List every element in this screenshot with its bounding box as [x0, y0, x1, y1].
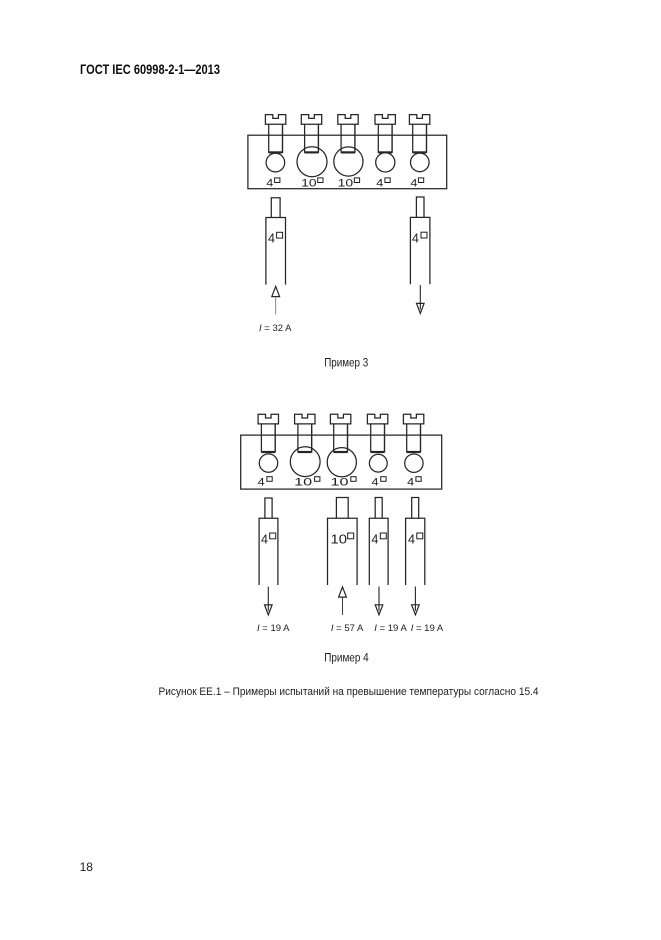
svg-text:ГОСТ IEC 60998-2-1—2013: ГОСТ IEC 60998-2-1—2013 — [80, 61, 220, 77]
svg-text:10: 10 — [301, 178, 317, 190]
svg-text:18: 18 — [80, 860, 94, 874]
svg-text:I = 19 A: I = 19 A — [411, 623, 444, 634]
svg-text:Пример 3: Пример 3 — [324, 358, 368, 370]
svg-text:I = 57 A: I = 57 A — [331, 623, 364, 634]
svg-text:4: 4 — [258, 476, 265, 488]
svg-text:4: 4 — [408, 531, 415, 546]
svg-text:4: 4 — [412, 231, 419, 246]
svg-text:Рисунок ЕЕ.1 – Примеры испытан: Рисунок ЕЕ.1 – Примеры испытаний на прев… — [159, 686, 539, 698]
svg-text:I = 32 A: I = 32 A — [259, 323, 292, 334]
svg-text:4: 4 — [261, 531, 268, 546]
svg-text:4: 4 — [266, 178, 273, 190]
svg-text:I = 19 A: I = 19 A — [374, 623, 407, 634]
svg-text:10: 10 — [331, 531, 348, 546]
svg-text:4: 4 — [376, 178, 383, 190]
svg-text:I = 19 A: I = 19 A — [257, 623, 290, 634]
svg-text:4: 4 — [372, 476, 379, 488]
svg-text:10: 10 — [338, 178, 354, 190]
svg-text:Пример 4: Пример 4 — [324, 653, 369, 665]
svg-text:10: 10 — [331, 476, 349, 488]
svg-text:4: 4 — [371, 531, 378, 546]
svg-text:4: 4 — [410, 178, 417, 190]
svg-text:4: 4 — [268, 231, 275, 246]
svg-text:4: 4 — [407, 476, 414, 488]
svg-text:10: 10 — [294, 476, 312, 488]
